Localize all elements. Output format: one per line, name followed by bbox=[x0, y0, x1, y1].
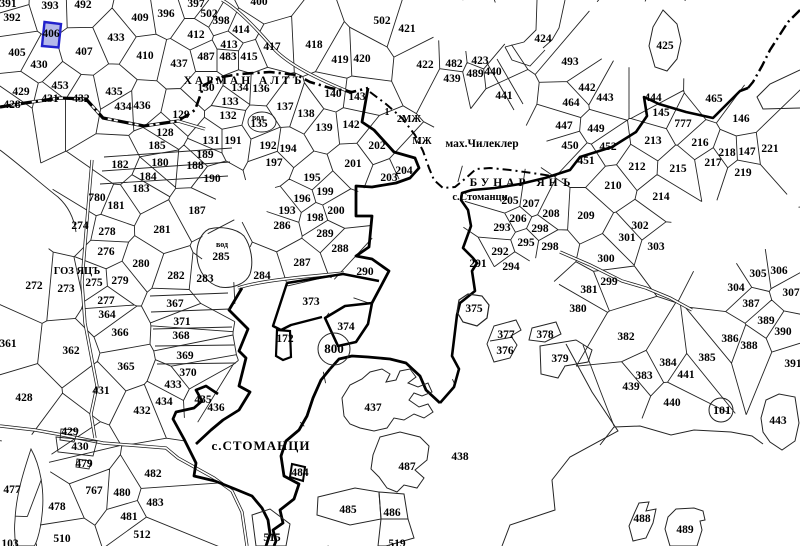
svg-text:483: 483 bbox=[219, 51, 237, 63]
svg-text:292: 292 bbox=[491, 246, 509, 258]
svg-text:425: 425 bbox=[656, 40, 674, 52]
svg-text:390: 390 bbox=[774, 326, 792, 338]
svg-text:492: 492 bbox=[74, 0, 92, 11]
svg-text:368: 368 bbox=[172, 330, 190, 342]
svg-text:182: 182 bbox=[111, 159, 129, 171]
svg-text:393: 393 bbox=[41, 0, 59, 12]
svg-text:146: 146 bbox=[732, 113, 750, 125]
svg-text:280: 280 bbox=[132, 258, 150, 270]
svg-text:453: 453 bbox=[51, 80, 69, 92]
svg-text:377: 377 bbox=[497, 329, 515, 341]
svg-text:217: 217 bbox=[704, 157, 722, 169]
svg-text:374: 374 bbox=[337, 321, 355, 333]
svg-text:196: 196 bbox=[293, 193, 311, 205]
svg-text:275: 275 bbox=[85, 277, 103, 289]
svg-text:2МЖ: 2МЖ bbox=[397, 114, 421, 125]
svg-text:480: 480 bbox=[113, 487, 131, 499]
svg-text:413: 413 bbox=[220, 39, 238, 51]
svg-text:145: 145 bbox=[652, 107, 670, 119]
svg-text:477: 477 bbox=[3, 484, 21, 496]
svg-text:487: 487 bbox=[398, 461, 416, 473]
svg-text:441: 441 bbox=[677, 369, 695, 381]
svg-text:415: 415 bbox=[240, 51, 258, 63]
svg-text:396: 396 bbox=[157, 8, 175, 20]
svg-text:361: 361 bbox=[0, 338, 17, 350]
svg-text:424: 424 bbox=[534, 33, 552, 45]
svg-text:407: 407 bbox=[75, 46, 93, 58]
svg-text:439: 439 bbox=[443, 73, 461, 85]
svg-text:ГОЗ ЯЦЪ: ГОЗ ЯЦЪ bbox=[54, 266, 101, 277]
svg-text:519: 519 bbox=[388, 538, 406, 546]
svg-text:184: 184 bbox=[139, 171, 157, 183]
svg-text:430: 430 bbox=[71, 441, 89, 453]
svg-text:209: 209 bbox=[577, 210, 595, 222]
svg-text:279: 279 bbox=[111, 275, 129, 287]
svg-text:300: 300 bbox=[597, 253, 615, 265]
svg-text:286: 286 bbox=[273, 220, 291, 232]
svg-text:485: 485 bbox=[339, 504, 357, 516]
svg-text:385: 385 bbox=[698, 352, 716, 364]
svg-text:398: 398 bbox=[212, 15, 230, 27]
svg-text:439: 439 bbox=[622, 381, 640, 393]
svg-text:440: 440 bbox=[663, 397, 681, 409]
svg-text:198: 198 bbox=[306, 212, 324, 224]
svg-text:429: 429 bbox=[61, 426, 79, 438]
svg-text:БУНАР ЯНЪ: БУНАР ЯНЪ bbox=[470, 177, 575, 189]
svg-text:417: 417 bbox=[263, 41, 281, 53]
svg-text:450: 450 bbox=[561, 140, 579, 152]
svg-text:298: 298 bbox=[531, 223, 549, 235]
svg-text:180: 180 bbox=[151, 157, 169, 169]
svg-text:183: 183 bbox=[132, 183, 150, 195]
svg-text:364: 364 bbox=[98, 309, 116, 321]
svg-text:373: 373 bbox=[302, 296, 320, 308]
svg-text:428: 428 bbox=[3, 99, 21, 111]
svg-text:442: 442 bbox=[578, 82, 596, 94]
svg-text:412: 412 bbox=[187, 29, 205, 41]
svg-text:206: 206 bbox=[509, 213, 527, 225]
svg-text:132: 132 bbox=[219, 110, 237, 122]
svg-text:вод: вод bbox=[252, 113, 264, 122]
svg-text:435: 435 bbox=[105, 86, 123, 98]
svg-text:367: 367 bbox=[166, 298, 184, 310]
svg-text:388: 388 bbox=[740, 340, 758, 352]
svg-text:487: 487 bbox=[197, 51, 215, 63]
svg-text:515: 515 bbox=[263, 532, 281, 544]
svg-text:142: 142 bbox=[342, 119, 360, 131]
svg-text:444: 444 bbox=[644, 92, 662, 104]
svg-text:192: 192 bbox=[259, 140, 277, 152]
svg-text:429: 429 bbox=[12, 86, 30, 98]
svg-text:405: 405 bbox=[8, 47, 26, 59]
svg-text:483: 483 bbox=[146, 497, 164, 509]
svg-text:433: 433 bbox=[107, 32, 125, 44]
svg-text:133: 133 bbox=[221, 96, 239, 108]
svg-text:421: 421 bbox=[398, 23, 416, 35]
svg-text:140: 140 bbox=[324, 88, 342, 100]
svg-text:382: 382 bbox=[617, 331, 635, 343]
svg-text:409: 409 bbox=[131, 12, 149, 24]
svg-text:493: 493 bbox=[561, 56, 579, 68]
svg-text:452: 452 bbox=[599, 141, 617, 153]
svg-text:287: 287 bbox=[293, 257, 311, 269]
svg-text:219: 219 bbox=[734, 167, 752, 179]
svg-text:431: 431 bbox=[41, 93, 59, 105]
svg-text:447: 447 bbox=[555, 120, 573, 132]
svg-text:432: 432 bbox=[133, 405, 151, 417]
svg-text:101: 101 bbox=[713, 403, 731, 417]
svg-text:302: 302 bbox=[631, 220, 649, 232]
svg-text:131: 131 bbox=[202, 135, 220, 147]
svg-text:301: 301 bbox=[618, 232, 636, 244]
svg-text:434: 434 bbox=[155, 396, 173, 408]
svg-text:410: 410 bbox=[136, 50, 154, 62]
svg-text:139: 139 bbox=[315, 122, 333, 134]
svg-text:375: 375 bbox=[465, 303, 483, 315]
svg-text:366: 366 bbox=[111, 327, 129, 339]
svg-text:299: 299 bbox=[600, 276, 618, 288]
svg-text:128: 128 bbox=[156, 127, 174, 139]
svg-text:200: 200 bbox=[327, 205, 345, 217]
svg-text:777: 777 bbox=[674, 118, 692, 130]
svg-text:МЖ: МЖ bbox=[412, 136, 431, 147]
svg-text:289: 289 bbox=[316, 228, 334, 240]
svg-text:380: 380 bbox=[569, 303, 587, 315]
svg-text:208: 208 bbox=[542, 208, 560, 220]
svg-text:306: 306 bbox=[770, 265, 788, 277]
svg-text:307: 307 bbox=[782, 287, 800, 299]
svg-text:201: 201 bbox=[344, 158, 362, 170]
svg-text:436: 436 bbox=[207, 402, 225, 414]
svg-text:437: 437 bbox=[364, 402, 382, 414]
svg-text:440: 440 bbox=[484, 66, 502, 78]
svg-text:ХАРМАН АЛТЪ: ХАРМАН АЛТЪ bbox=[184, 75, 305, 87]
svg-text:221: 221 bbox=[761, 143, 779, 155]
svg-text:481: 481 bbox=[120, 511, 138, 523]
svg-text:767: 767 bbox=[85, 485, 103, 497]
svg-text:147: 147 bbox=[738, 146, 756, 158]
svg-text:210: 210 bbox=[604, 180, 622, 192]
svg-text:381: 381 bbox=[580, 284, 598, 296]
svg-text:193: 193 bbox=[278, 205, 296, 217]
svg-text:137: 137 bbox=[276, 101, 294, 113]
svg-text:400: 400 bbox=[250, 0, 268, 8]
svg-text:488: 488 bbox=[633, 513, 651, 525]
svg-text:512: 512 bbox=[133, 529, 151, 541]
svg-text:с.СТОМАНЦИ: с.СТОМАНЦИ bbox=[211, 438, 310, 453]
svg-text:190: 190 bbox=[203, 173, 221, 185]
svg-text:371: 371 bbox=[173, 316, 191, 328]
svg-text:441: 441 bbox=[495, 90, 513, 102]
svg-text:290: 290 bbox=[356, 266, 374, 278]
svg-text:362: 362 bbox=[62, 345, 80, 357]
svg-text:207: 207 bbox=[522, 198, 540, 210]
svg-text:451: 451 bbox=[577, 155, 595, 167]
svg-text:449: 449 bbox=[587, 123, 605, 135]
svg-text:194: 194 bbox=[279, 143, 297, 155]
svg-text:204: 204 bbox=[395, 165, 413, 177]
svg-text:433: 433 bbox=[164, 379, 182, 391]
svg-text:386: 386 bbox=[721, 333, 739, 345]
svg-text:780: 780 bbox=[88, 192, 106, 204]
svg-text:191: 191 bbox=[224, 135, 242, 147]
svg-text:387: 387 bbox=[742, 298, 760, 310]
svg-text:172: 172 bbox=[276, 333, 294, 345]
svg-text:272: 272 bbox=[25, 280, 43, 292]
svg-text:216: 216 bbox=[691, 137, 709, 149]
svg-text:370: 370 bbox=[179, 367, 197, 379]
svg-text:431: 431 bbox=[92, 385, 110, 397]
svg-text:129: 129 bbox=[172, 109, 190, 121]
svg-text:199: 199 bbox=[316, 186, 334, 198]
svg-text:213: 213 bbox=[644, 135, 662, 147]
svg-text:419: 419 bbox=[331, 54, 349, 66]
svg-text:274: 274 bbox=[71, 220, 89, 232]
svg-text:482: 482 bbox=[144, 468, 162, 480]
svg-text:214: 214 bbox=[652, 191, 670, 203]
svg-text:391: 391 bbox=[0, 0, 17, 10]
svg-text:285: 285 bbox=[212, 251, 230, 263]
svg-text:430: 430 bbox=[30, 59, 48, 71]
svg-text:284: 284 bbox=[253, 270, 271, 282]
svg-text:188: 188 bbox=[186, 160, 204, 172]
svg-text:1: 1 bbox=[385, 107, 390, 118]
svg-text:291: 291 bbox=[469, 258, 487, 270]
svg-text:391: 391 bbox=[784, 358, 800, 370]
svg-text:418: 418 bbox=[305, 39, 323, 51]
svg-text:478: 478 bbox=[48, 501, 66, 513]
svg-text:293: 293 bbox=[493, 222, 511, 234]
svg-text:378: 378 bbox=[536, 329, 554, 341]
svg-text:432: 432 bbox=[72, 93, 90, 105]
svg-text:278: 278 bbox=[98, 226, 116, 238]
svg-text:436: 436 bbox=[133, 100, 151, 112]
svg-text:428: 428 bbox=[15, 392, 33, 404]
svg-text:392: 392 bbox=[3, 12, 21, 24]
svg-text:197: 197 bbox=[265, 157, 283, 169]
svg-text:283: 283 bbox=[196, 273, 214, 285]
svg-text:800: 800 bbox=[324, 341, 344, 356]
svg-text:422: 422 bbox=[416, 59, 434, 71]
svg-text:с.Стоманци: с.Стоманци bbox=[452, 192, 507, 203]
svg-text:434: 434 bbox=[114, 101, 132, 113]
svg-text:282: 282 bbox=[167, 270, 185, 282]
svg-text:437: 437 bbox=[170, 58, 188, 70]
svg-text:143: 143 bbox=[348, 91, 366, 103]
svg-text:273: 273 bbox=[57, 283, 75, 295]
svg-text:181: 181 bbox=[107, 200, 125, 212]
svg-text:202: 202 bbox=[368, 140, 386, 152]
svg-text:365: 365 bbox=[117, 361, 135, 373]
svg-text:138: 138 bbox=[297, 108, 315, 120]
svg-text:406: 406 bbox=[42, 28, 60, 40]
svg-text:195: 195 bbox=[303, 172, 321, 184]
svg-text:420: 420 bbox=[353, 53, 371, 65]
svg-text:489: 489 bbox=[466, 68, 484, 80]
svg-text:502: 502 bbox=[373, 15, 391, 27]
svg-text:465: 465 bbox=[705, 93, 723, 105]
svg-text:484: 484 bbox=[291, 467, 309, 479]
svg-text:277: 277 bbox=[97, 295, 115, 307]
svg-text:288: 288 bbox=[331, 243, 349, 255]
svg-text:443: 443 bbox=[596, 92, 614, 104]
svg-text:414: 414 bbox=[232, 24, 250, 36]
svg-text:103: 103 bbox=[1, 538, 19, 546]
svg-text:489: 489 bbox=[676, 524, 694, 536]
svg-text:212: 212 bbox=[628, 161, 646, 173]
svg-text:304: 304 bbox=[727, 282, 745, 294]
svg-text:298: 298 bbox=[541, 241, 559, 253]
svg-text:510: 510 bbox=[53, 533, 71, 545]
svg-text:443: 443 bbox=[769, 415, 787, 427]
svg-text:295: 295 bbox=[517, 237, 535, 249]
svg-text:185: 185 bbox=[148, 140, 166, 152]
svg-text:379: 379 bbox=[551, 353, 569, 365]
svg-text:384: 384 bbox=[659, 357, 677, 369]
svg-text:281: 281 bbox=[153, 224, 171, 236]
svg-text:438: 438 bbox=[451, 451, 469, 463]
svg-text:464: 464 bbox=[562, 97, 580, 109]
svg-text:303: 303 bbox=[647, 241, 665, 253]
svg-text:486: 486 bbox=[383, 507, 401, 519]
svg-text:215: 215 bbox=[669, 163, 687, 175]
svg-text:389: 389 bbox=[757, 315, 775, 327]
svg-text:294: 294 bbox=[502, 261, 520, 273]
svg-text:мах.Чилеклер: мах.Чилеклер bbox=[445, 138, 518, 150]
svg-text:вод: вод bbox=[216, 240, 228, 249]
svg-text:482: 482 bbox=[445, 58, 463, 70]
svg-text:276: 276 bbox=[97, 246, 115, 258]
svg-text:369: 369 bbox=[176, 350, 194, 362]
svg-text:187: 187 bbox=[188, 205, 206, 217]
svg-text:376: 376 bbox=[496, 345, 514, 357]
svg-text:305: 305 bbox=[749, 268, 767, 280]
svg-text:479: 479 bbox=[75, 458, 93, 470]
